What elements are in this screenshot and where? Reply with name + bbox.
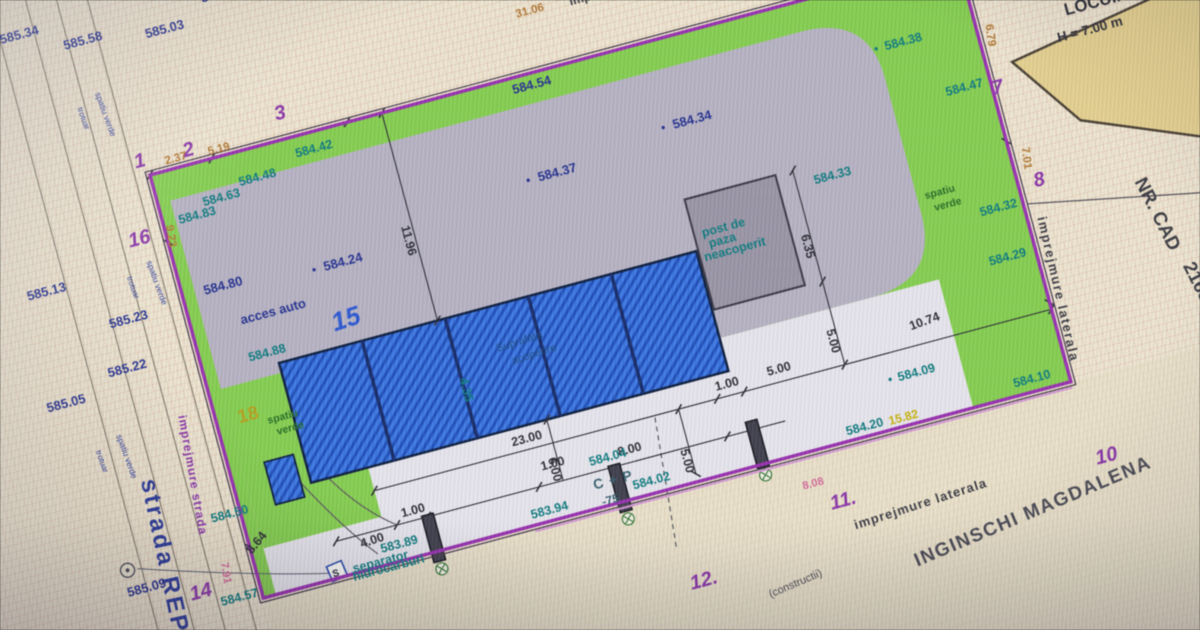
site-plan-photo: strada REPUBLICII spatiu verde trotuar s… <box>0 0 1200 630</box>
site-plan-drawing: strada REPUBLICII spatiu verde trotuar s… <box>0 0 1200 630</box>
